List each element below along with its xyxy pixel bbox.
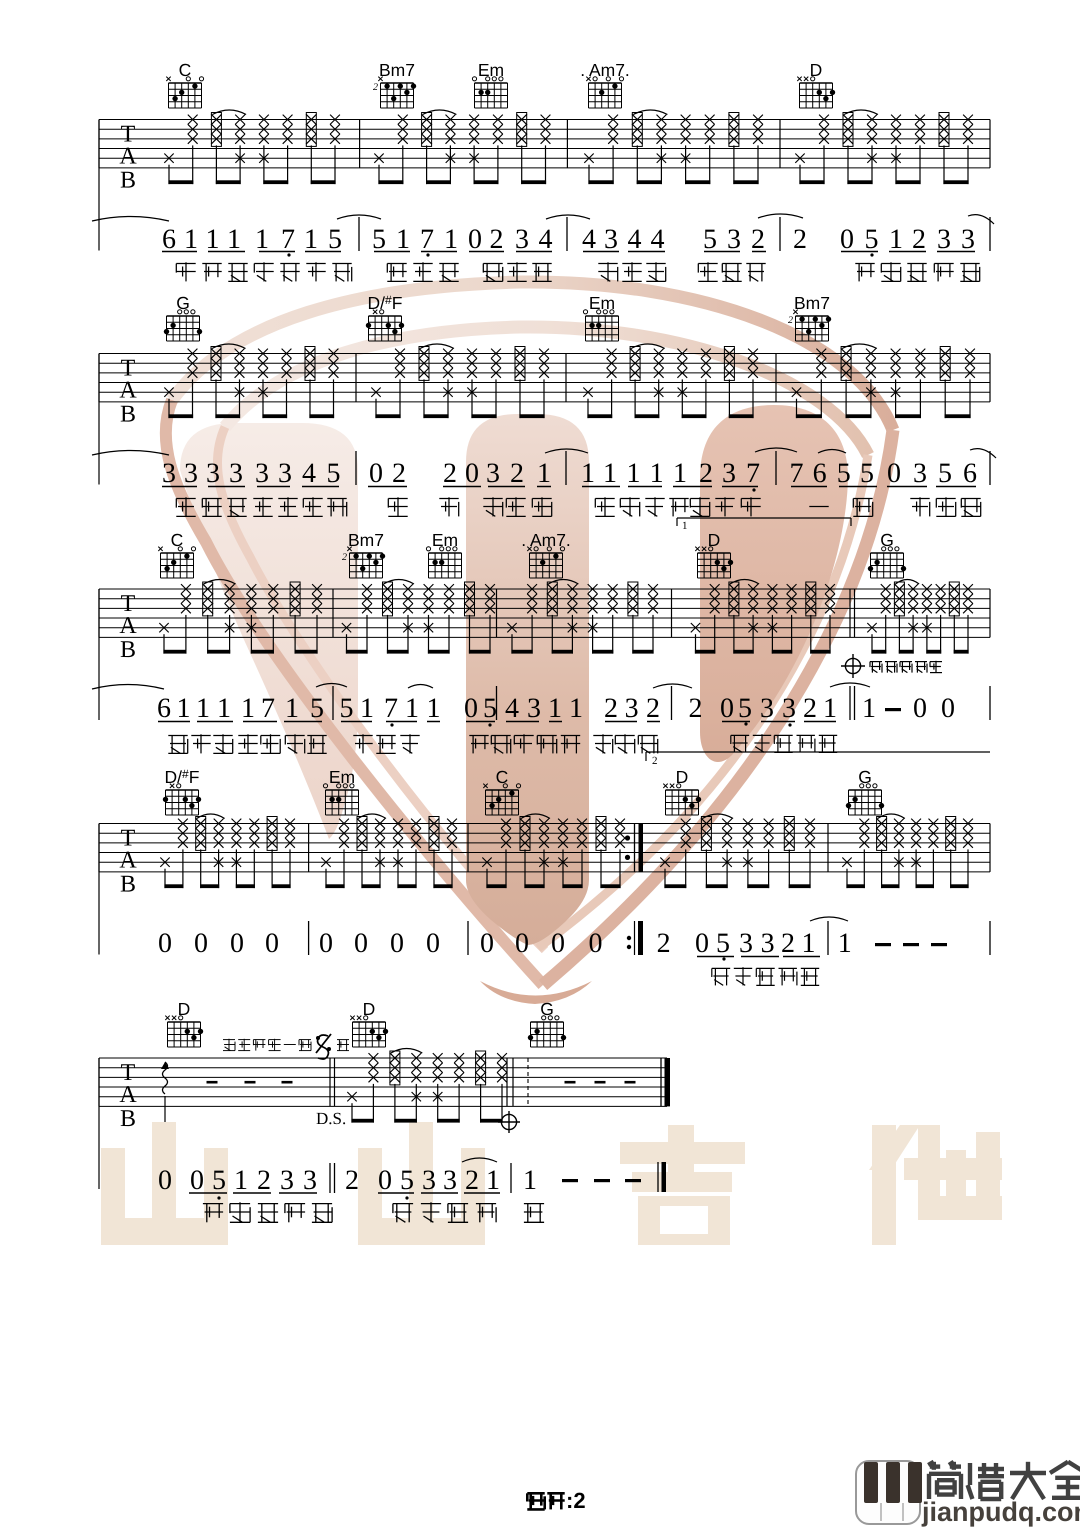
svg-text:D: D (810, 60, 823, 80)
svg-text:4: 4 (539, 224, 553, 255)
svg-text:3: 3 (961, 224, 975, 255)
svg-text:3: 3 (422, 1165, 436, 1196)
svg-text:3: 3 (486, 458, 500, 489)
svg-text:1: 1 (184, 224, 198, 255)
svg-text:5: 5 (865, 224, 879, 255)
svg-text:D.S.: D.S. (316, 1109, 346, 1128)
svg-text:2: 2 (781, 928, 795, 959)
svg-text:7: 7 (384, 693, 398, 724)
svg-text:7: 7 (420, 224, 434, 255)
svg-text:2: 2 (657, 928, 671, 959)
svg-text:2: 2 (342, 552, 347, 563)
svg-text:2: 2 (443, 458, 457, 489)
svg-text:4: 4 (582, 224, 596, 255)
svg-text:Bm7: Bm7 (794, 293, 830, 313)
svg-text:B: B (120, 1106, 136, 1132)
svg-text:0: 0 (354, 928, 368, 959)
svg-text:1: 1 (650, 458, 664, 489)
svg-text:0: 0 (319, 928, 333, 959)
svg-text:3: 3 (722, 458, 736, 489)
svg-text:D: D (708, 530, 721, 550)
svg-text:0: 0 (158, 1165, 172, 1196)
svg-text:0: 0 (190, 1165, 204, 1196)
svg-text:2: 2 (793, 224, 807, 255)
svg-text:D: D (178, 999, 191, 1019)
svg-text:5: 5 (310, 693, 324, 724)
svg-text:1: 1 (523, 1165, 537, 1196)
svg-text:1: 1 (889, 224, 903, 255)
svg-text:1: 1 (255, 224, 269, 255)
svg-text:1: 1 (427, 693, 441, 724)
svg-text:0: 0 (369, 458, 383, 489)
svg-text:0: 0 (464, 693, 478, 724)
svg-text:7: 7 (281, 224, 295, 255)
svg-text:3: 3 (527, 693, 541, 724)
svg-text:Em: Em (589, 293, 615, 313)
svg-text:3: 3 (206, 458, 220, 489)
svg-text:0: 0 (194, 928, 208, 959)
svg-text:0: 0 (887, 458, 901, 489)
svg-text:5: 5 (738, 693, 752, 724)
svg-text:0: 0 (695, 928, 709, 959)
svg-text:2: 2 (751, 224, 765, 255)
svg-text:A: A (119, 378, 137, 404)
svg-text:Bm7: Bm7 (348, 530, 384, 550)
svg-text:2: 2 (490, 224, 504, 255)
svg-text:5: 5 (860, 458, 874, 489)
svg-text:4: 4 (651, 224, 665, 255)
svg-text:0: 0 (515, 928, 529, 959)
svg-text:5: 5 (400, 1165, 414, 1196)
svg-text:0: 0 (720, 693, 734, 724)
svg-text:0: 0 (426, 928, 440, 959)
svg-text:2: 2 (646, 693, 660, 724)
svg-text:5: 5 (703, 224, 717, 255)
svg-text:2: 2 (373, 82, 378, 93)
svg-text:2: 2 (510, 458, 524, 489)
svg-text:1: 1 (548, 693, 562, 724)
svg-text:6: 6 (963, 458, 977, 489)
svg-text::2: :2 (566, 1488, 586, 1513)
svg-text:Em: Em (478, 60, 504, 80)
svg-text:4: 4 (302, 458, 316, 489)
svg-text:0: 0 (378, 1165, 392, 1196)
svg-text:1: 1 (217, 693, 231, 724)
svg-text:7: 7 (261, 693, 275, 724)
svg-text:1: 1 (285, 693, 299, 724)
svg-text:0: 0 (941, 693, 955, 724)
svg-text:0: 0 (913, 693, 927, 724)
svg-text:1: 1 (360, 693, 374, 724)
svg-text:3: 3 (913, 458, 927, 489)
svg-text:5: 5 (327, 458, 341, 489)
svg-text:4: 4 (505, 693, 519, 724)
svg-text:D/#F: D/#F (165, 767, 200, 787)
svg-text:G: G (540, 999, 554, 1019)
svg-text:D/#F: D/#F (368, 293, 403, 313)
svg-text:A: A (119, 144, 137, 170)
svg-text:D: D (676, 767, 689, 787)
svg-text:3: 3 (760, 693, 774, 724)
svg-text:2: 2 (652, 755, 658, 767)
svg-text:C: C (179, 60, 192, 80)
svg-text:. Am7.: . Am7. (580, 60, 630, 80)
svg-text:5: 5 (938, 458, 952, 489)
svg-text:2: 2 (912, 224, 926, 255)
svg-text:3: 3 (782, 693, 796, 724)
svg-text:A: A (119, 848, 137, 874)
svg-text:0: 0 (480, 928, 494, 959)
svg-text:5: 5 (483, 693, 497, 724)
svg-text:1: 1 (627, 458, 641, 489)
svg-text:1: 1 (196, 693, 210, 724)
svg-text:5: 5 (340, 693, 354, 724)
svg-text:A: A (119, 1082, 137, 1108)
svg-text:2: 2 (345, 1165, 359, 1196)
svg-text:3: 3 (280, 1165, 294, 1196)
svg-text:3: 3 (937, 224, 951, 255)
svg-text:5: 5 (372, 224, 386, 255)
svg-text:G: G (858, 767, 872, 787)
svg-text:jianpudq.com: jianpudq.com (921, 1497, 1080, 1527)
svg-text:3: 3 (255, 458, 269, 489)
svg-text:3: 3 (229, 458, 243, 489)
svg-text:3: 3 (625, 693, 639, 724)
svg-text:1: 1 (569, 693, 583, 724)
svg-text:2: 2 (604, 693, 618, 724)
svg-text:0: 0 (390, 928, 404, 959)
svg-text:5: 5 (716, 928, 730, 959)
svg-text:1: 1 (673, 458, 687, 489)
svg-text:1: 1 (682, 520, 688, 532)
svg-text:3: 3 (184, 458, 198, 489)
svg-text:1: 1 (396, 224, 410, 255)
svg-text:2: 2 (392, 458, 406, 489)
svg-text:G: G (880, 530, 894, 550)
svg-text:. Am7.: . Am7. (521, 530, 571, 550)
svg-text:1: 1 (486, 1165, 500, 1196)
svg-text:A: A (119, 613, 137, 639)
svg-text:1: 1 (304, 224, 318, 255)
svg-text:6: 6 (162, 224, 176, 255)
svg-text:3: 3 (162, 458, 176, 489)
svg-text:1: 1 (227, 224, 241, 255)
svg-text:0: 0 (840, 224, 854, 255)
svg-text:1: 1 (581, 458, 595, 489)
svg-text:C: C (496, 767, 509, 787)
svg-text:5: 5 (212, 1165, 226, 1196)
svg-text:2: 2 (257, 1165, 271, 1196)
svg-text:3: 3 (739, 928, 753, 959)
svg-text:0: 0 (589, 928, 603, 959)
svg-text:3: 3 (443, 1165, 457, 1196)
svg-text:Em: Em (432, 530, 458, 550)
svg-text:1: 1 (838, 928, 852, 959)
svg-text:2: 2 (699, 458, 713, 489)
svg-text:G: G (176, 293, 190, 313)
svg-text:1: 1 (405, 693, 419, 724)
svg-text:Em: Em (329, 767, 355, 787)
svg-text:B: B (120, 168, 136, 194)
svg-text:C: C (171, 530, 184, 550)
svg-text:3: 3 (278, 458, 292, 489)
svg-text:1: 1 (206, 224, 220, 255)
svg-text:1: 1 (444, 224, 458, 255)
svg-text:3: 3 (727, 224, 741, 255)
svg-text:B: B (120, 402, 136, 428)
svg-text:3: 3 (303, 1165, 317, 1196)
svg-text:1: 1 (241, 693, 255, 724)
svg-text:5: 5 (837, 458, 851, 489)
svg-text:0: 0 (158, 928, 172, 959)
svg-text:D: D (363, 999, 376, 1019)
svg-text:6: 6 (157, 693, 171, 724)
svg-text:2: 2 (465, 1165, 479, 1196)
svg-text:0: 0 (551, 928, 565, 959)
svg-text:1: 1 (537, 458, 551, 489)
svg-text:3: 3 (515, 224, 529, 255)
svg-text:7: 7 (746, 458, 760, 489)
svg-text:2: 2 (788, 315, 793, 326)
svg-text:1: 1 (177, 693, 191, 724)
svg-text:5: 5 (328, 224, 342, 255)
svg-text:1: 1 (862, 693, 876, 724)
svg-text:2: 2 (803, 693, 817, 724)
svg-text:Bm7: Bm7 (379, 60, 415, 80)
svg-text:B: B (120, 872, 136, 898)
svg-text:0: 0 (468, 224, 482, 255)
svg-text:3: 3 (604, 224, 618, 255)
svg-text:1: 1 (802, 928, 816, 959)
svg-text:7: 7 (790, 458, 804, 489)
svg-text:0: 0 (230, 928, 244, 959)
svg-text:1: 1 (234, 1165, 248, 1196)
svg-text:0: 0 (265, 928, 279, 959)
svg-text:3: 3 (761, 928, 775, 959)
svg-text:1: 1 (823, 693, 837, 724)
svg-text:2: 2 (689, 693, 703, 724)
svg-text:4: 4 (628, 224, 642, 255)
svg-text:B: B (120, 637, 136, 663)
svg-text:0: 0 (465, 458, 479, 489)
svg-text:1: 1 (603, 458, 617, 489)
svg-text:6: 6 (813, 458, 827, 489)
